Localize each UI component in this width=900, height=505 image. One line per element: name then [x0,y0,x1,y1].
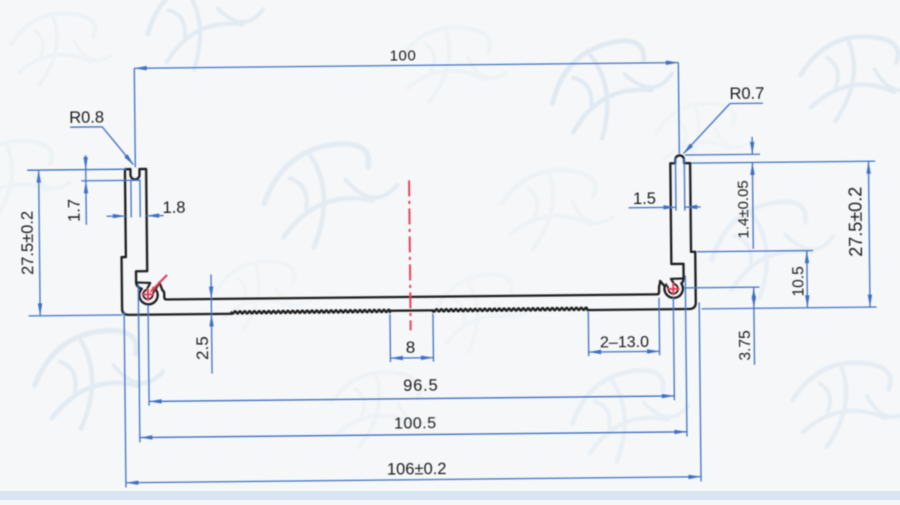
svg-text:1.5: 1.5 [633,190,656,208]
svg-text:R0.7: R0.7 [729,85,764,103]
svg-text:2.5: 2.5 [193,336,212,360]
svg-text:8: 8 [406,338,416,357]
svg-text:1.8: 1.8 [162,199,185,217]
svg-text:106±0.2: 106±0.2 [387,460,447,479]
svg-text:10.5: 10.5 [790,266,807,296]
svg-text:R0.8: R0.8 [69,109,104,127]
svg-text:27.5±0.2: 27.5±0.2 [18,211,37,275]
svg-text:27.5±0.2: 27.5±0.2 [846,187,867,257]
svg-text:3.75: 3.75 [737,330,754,360]
svg-text:96.5: 96.5 [403,377,439,395]
svg-text:2–13.0: 2–13.0 [600,334,649,352]
svg-text:1.7: 1.7 [65,199,83,222]
svg-text:100: 100 [389,47,416,64]
svg-text:1.4±0.05: 1.4±0.05 [735,180,753,238]
svg-text:100.5: 100.5 [394,415,437,432]
